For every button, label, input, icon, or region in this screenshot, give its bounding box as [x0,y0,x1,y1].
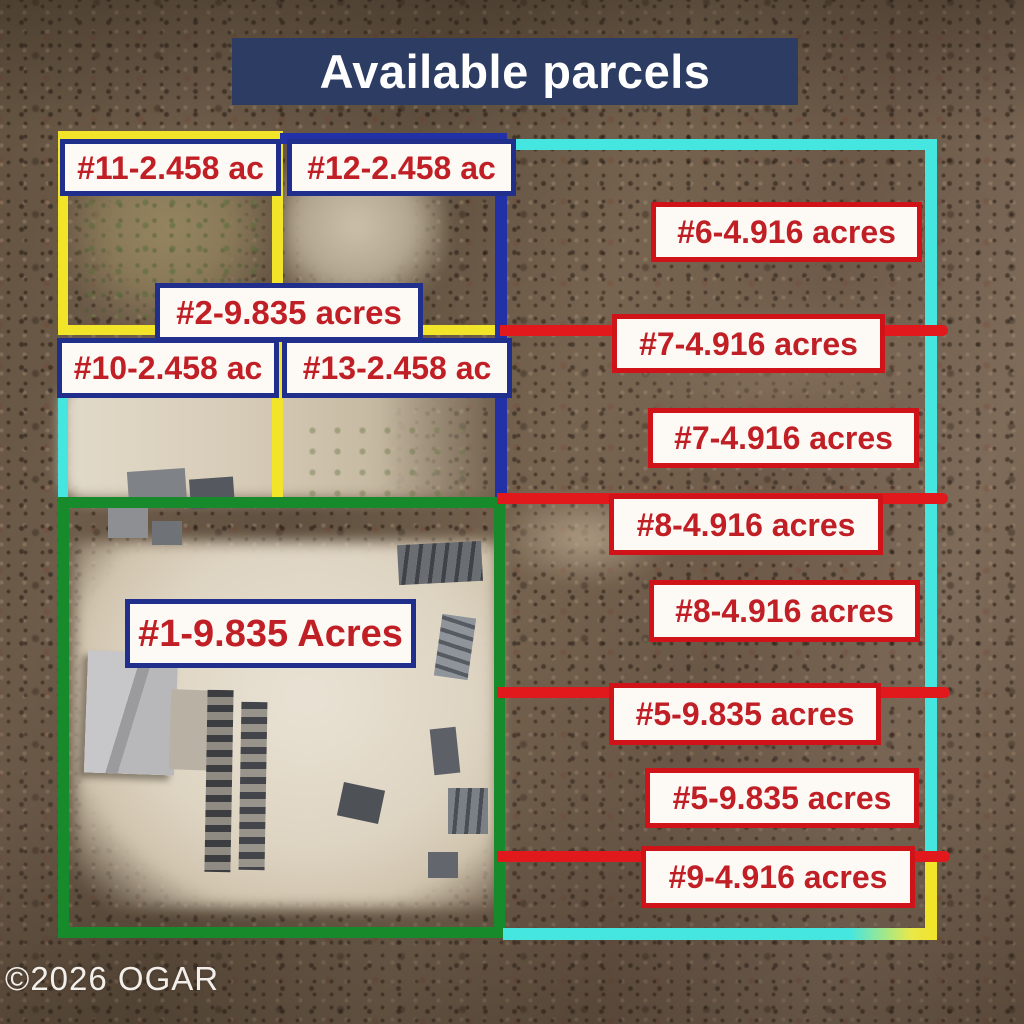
parcel-label-13-text: #13-2.458 ac [303,352,492,384]
parcel-label-9: #9-4.916 acres [641,846,915,908]
copyright-watermark: ©2026 OGAR [5,960,219,998]
parcel-label-8-lower-text: #8-4.916 acres [675,595,894,627]
boundary-green-parcel-1 [58,497,505,938]
title-banner: Available parcels [232,38,798,105]
shrub-texture-parcel-13 [300,420,485,500]
parcel-label-8-upper: #8-4.916 acres [609,494,883,555]
parcel-label-6-text: #6-4.916 acres [677,216,896,248]
parcel-map-image: #11-2.458 ac #12-2.458 ac #6-4.916 acres… [0,0,1024,1024]
parcel-label-11-text: #11-2.458 ac [77,152,264,184]
parcel-label-5-lower-text: #5-9.835 acres [673,782,892,814]
parcel-label-5-upper: #5-9.835 acres [609,683,881,745]
parcel-label-7-upper-text: #7-4.916 acres [639,328,858,360]
parcel-label-2-text: #2-9.835 acres [176,296,402,329]
parcel-label-10: #10-2.458 ac [57,338,279,398]
parcel-label-1-text: #1-9.835 Acres [138,615,403,653]
parcel-label-2: #2-9.835 acres [155,283,423,342]
boundary-cyan-bottom-right-tract [503,928,937,940]
parcel-label-7-upper: #7-4.916 acres [612,314,885,373]
parcel-label-5-upper-text: #5-9.835 acres [636,698,855,730]
parcel-label-8-upper-text: #8-4.916 acres [637,509,856,541]
title-text: Available parcels [320,44,711,99]
parcel-label-5-lower: #5-9.835 acres [645,768,919,828]
parcel-label-11: #11-2.458 ac [60,139,281,196]
boundary-cyan-left-parcel-10 [58,388,68,502]
boundary-cyan-top-right-tract [505,139,937,150]
parcel-label-1: #1-9.835 Acres [125,599,416,668]
parcel-label-8-lower: #8-4.916 acres [649,580,920,642]
parcel-label-12-text: #12-2.458 ac [307,152,496,184]
boundary-yellow-bottom-right [925,853,937,940]
parcel-label-12: #12-2.458 ac [287,139,516,196]
parcel-label-6: #6-4.916 acres [651,202,922,262]
parcel-label-7-lower: #7-4.916 acres [648,408,919,468]
parcel-label-10-text: #10-2.458 ac [74,352,263,384]
parcel-label-9-text: #9-4.916 acres [669,861,888,893]
parcel-label-13: #13-2.458 ac [282,338,512,398]
parcel-label-7-lower-text: #7-4.916 acres [674,422,893,454]
